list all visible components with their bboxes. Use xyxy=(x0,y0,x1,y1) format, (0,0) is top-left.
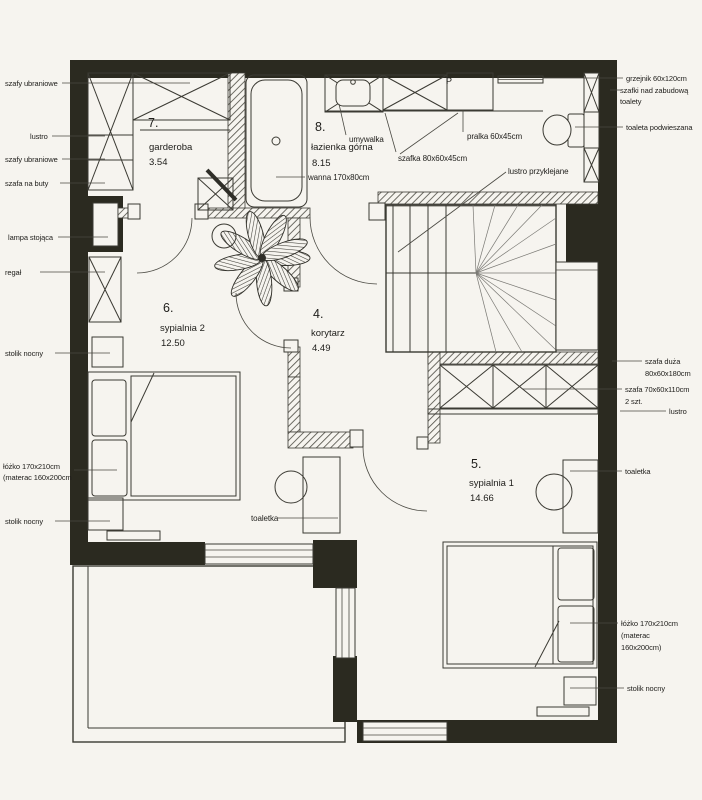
label-bed2-line2: (materac 160x200cm xyxy=(3,473,72,482)
toilet xyxy=(543,114,584,147)
right-margin-labels: grzejnik 60x120cm szafki nad zabudową to… xyxy=(620,74,693,693)
label-mirror-right: lustro xyxy=(669,407,687,416)
chimney-block xyxy=(566,195,598,262)
window-south-bedroom2 xyxy=(205,544,313,564)
room6-name: sypialnia 2 xyxy=(160,323,205,334)
label-big-wardrobe2: 80x60x180cm xyxy=(645,369,691,378)
label-bed1-line3: 160x200cm) xyxy=(621,643,662,652)
label-hung-toilet: toaleta podwieszana xyxy=(626,123,693,132)
label-bathtub: wanna 170x80cm xyxy=(307,173,370,182)
niche-opening xyxy=(93,203,118,246)
room7-area: 3.54 xyxy=(149,157,168,168)
label-wardrobe-70b: 2 szt. xyxy=(625,397,642,406)
room8-number: 8. xyxy=(315,120,325,134)
label-cabinets-line2: toalety xyxy=(620,97,642,106)
label-wardrobe-70: szafa 70x60x110cm xyxy=(625,385,689,394)
window-south-bedroom1 xyxy=(363,722,447,741)
label-big-wardrobe1: szafa duża xyxy=(645,357,681,366)
left-margin-labels: szafy ubraniowe lustro szafy ubraniowe s… xyxy=(3,79,72,526)
room4-area: 4.49 xyxy=(312,343,331,354)
label-cabinet-80: szafka 80x60x45cm xyxy=(398,154,467,163)
floor-plan-drawing: szafy ubraniowe lustro szafy ubraniowe s… xyxy=(0,0,702,800)
label-glued-mirror: lustro przyklejane xyxy=(508,167,569,176)
door-garderoba-bedroom2 xyxy=(137,218,192,273)
room8-name: łazienka górna xyxy=(311,142,374,153)
label-nightstand-top: stolik nocny xyxy=(5,349,43,358)
label-wardrobes-mid: szafy ubraniowe xyxy=(5,155,58,164)
balcony-terrace xyxy=(73,566,345,742)
washing-machine xyxy=(447,73,493,110)
label-floor-lamp: lampa stojąca xyxy=(8,233,54,242)
label-vanity-right: toaletka xyxy=(625,467,651,476)
label-washer: pralka 60x45cm xyxy=(467,132,523,141)
nightstand-top-bedroom2 xyxy=(92,337,123,367)
room5-number: 5. xyxy=(471,457,481,471)
room8-area: 8.15 xyxy=(312,158,331,169)
label-nightstand-bot: stolik nocny xyxy=(5,517,43,526)
label-wardrobes-top: szafy ubraniowe xyxy=(5,79,58,88)
label-shelf: regał xyxy=(5,268,22,277)
floor-plan-scan: szafy ubraniowe lustro szafy ubraniowe s… xyxy=(0,0,702,800)
label-radiator: grzejnik 60x120cm xyxy=(626,74,687,83)
toilet-cabinet-column xyxy=(584,73,599,182)
door-bedroom1 xyxy=(363,447,427,511)
label-nightstand-r: stolik nocny xyxy=(627,684,665,693)
room4-name: korytarz xyxy=(311,328,345,339)
bench-bedroom1 xyxy=(537,707,589,716)
stairs xyxy=(386,205,556,352)
window-west-bedroom1 xyxy=(336,588,355,658)
label-vanity-left: toaletka xyxy=(251,514,279,523)
label-shoe-cabinet: szafa na buty xyxy=(5,179,49,188)
bathroom-cabinet xyxy=(383,75,447,110)
sink-unit xyxy=(325,75,383,112)
bathtub xyxy=(246,75,307,207)
interior-walls xyxy=(118,73,598,449)
room6-area: 12.50 xyxy=(161,338,185,349)
room7-name: garderoba xyxy=(149,142,193,153)
door-bathroom xyxy=(310,217,377,284)
washer-mark: P xyxy=(446,76,452,86)
room7-number: 7. xyxy=(148,116,158,130)
label-bed2-line1: łóżko 170x210cm xyxy=(3,462,60,471)
bench-bedroom2 xyxy=(107,531,160,540)
label-mirror-left: lustro xyxy=(30,132,48,141)
label-bed1-line1: łóżko 170x210cm xyxy=(621,619,678,628)
glued-mirror-wall xyxy=(378,192,598,204)
room6-number: 6. xyxy=(163,301,173,315)
nightstand-bottom-bedroom2 xyxy=(88,498,123,530)
bed-bedroom2 xyxy=(88,372,240,500)
room4-number: 4. xyxy=(313,307,323,321)
wardrobe-row-bedroom1 xyxy=(428,365,598,414)
stair-winders xyxy=(473,205,556,352)
vanity-bedroom2 xyxy=(275,457,340,533)
bed-bedroom1 xyxy=(443,542,597,668)
mirror-strip xyxy=(428,409,598,414)
room5-name: sypialnia 1 xyxy=(469,478,514,489)
label-cabinets-line1: szafki nad zabudową xyxy=(620,86,689,95)
shelf-regal xyxy=(89,257,121,322)
big-wardrobe xyxy=(556,262,598,350)
room5-area: 14.66 xyxy=(470,493,494,504)
nightstand-bedroom1 xyxy=(564,677,596,705)
label-bed1-line2: (materac xyxy=(621,631,650,640)
